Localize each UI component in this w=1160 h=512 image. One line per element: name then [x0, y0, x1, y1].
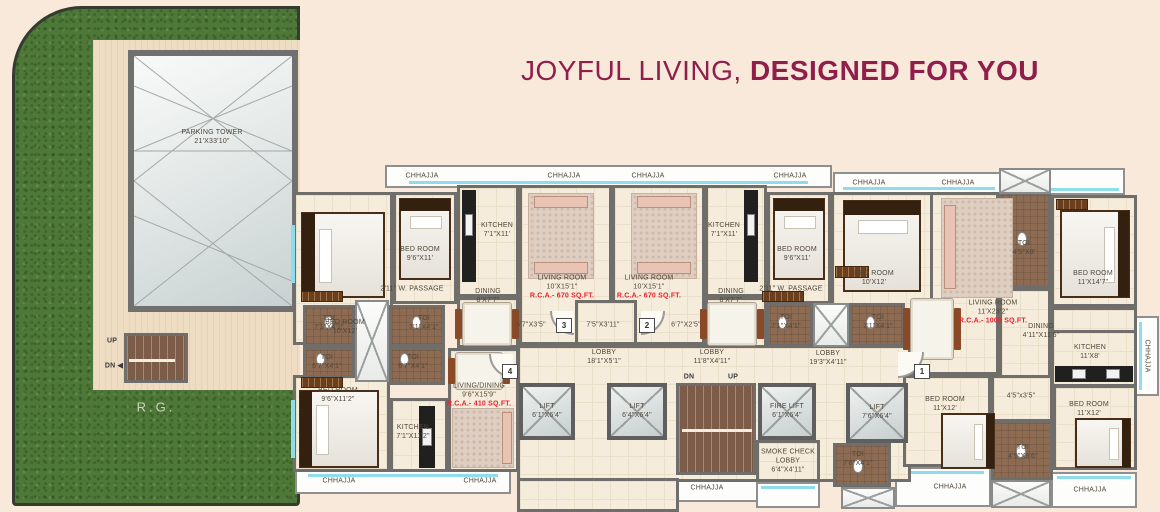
room-toilet	[389, 347, 445, 385]
wc-icon	[1017, 232, 1027, 246]
balcony-duct	[841, 487, 895, 509]
chhajja-band	[756, 482, 820, 508]
page-title: JOYFUL LIVING, DESIGNED FOR YOU	[460, 55, 1100, 87]
living-room-1-floor	[999, 288, 1051, 387]
room-toilet	[767, 303, 813, 347]
dining-table-icon	[462, 302, 512, 346]
hob-icon	[465, 214, 473, 236]
wardrobe-icon	[762, 291, 804, 302]
bed-icon	[773, 198, 825, 280]
sink-icon	[1106, 369, 1120, 379]
duct	[813, 303, 849, 347]
entrance-foyer	[575, 300, 637, 345]
stair-landing-line	[682, 429, 752, 432]
sofa-icon	[637, 262, 691, 274]
sofa-icon	[534, 262, 588, 274]
sofa-icon	[944, 205, 956, 289]
fire-lift-shaft	[758, 383, 816, 440]
core-staircase	[676, 383, 756, 475]
wardrobe-icon	[835, 266, 869, 278]
wc-icon	[866, 316, 875, 329]
kitchen-counter	[1055, 366, 1133, 382]
bed-icon	[843, 200, 921, 292]
balcony-duct	[991, 480, 1051, 508]
sofa-icon	[534, 196, 588, 208]
truss-lines-graphic	[134, 56, 292, 306]
kitchen-counter	[462, 190, 476, 282]
bed-icon	[941, 413, 995, 469]
sofa-icon	[502, 412, 512, 464]
bed-icon	[299, 390, 379, 468]
window-strip	[291, 225, 295, 283]
dining-table-icon	[707, 302, 757, 346]
chhajja-band	[833, 172, 1005, 194]
title-light: JOYFUL LIVING,	[521, 55, 742, 86]
sofa-icon	[637, 196, 691, 208]
wc-icon	[400, 353, 409, 365]
bed-icon	[1060, 210, 1130, 298]
wardrobe-icon	[1056, 199, 1088, 210]
wc-icon	[778, 316, 787, 329]
hob-icon	[1072, 369, 1086, 379]
wc-icon	[853, 459, 863, 473]
chhajja-band	[1039, 168, 1125, 195]
wardrobe-icon	[301, 377, 343, 388]
bed-icon	[1075, 418, 1131, 468]
chhajja-band-vertical	[1135, 316, 1159, 396]
wc-icon	[1016, 444, 1026, 458]
window-strip	[291, 400, 295, 458]
duct	[999, 168, 1051, 194]
passage-floor	[991, 375, 1053, 422]
wc-icon	[316, 353, 325, 365]
site-staircase	[124, 333, 188, 383]
hob-icon	[422, 428, 432, 446]
kitchen-counter	[744, 190, 758, 282]
chhajja-band	[295, 470, 511, 494]
wc-icon	[324, 316, 333, 329]
bed-icon	[399, 198, 451, 280]
room-toilet	[849, 303, 905, 347]
lobby-floor-extension	[517, 478, 679, 512]
wc-icon	[412, 316, 421, 329]
bed-icon	[301, 212, 385, 298]
hob-icon	[747, 214, 755, 236]
wardrobe-icon	[301, 291, 343, 302]
lift-shaft	[607, 383, 667, 440]
title-bold: DESIGNED FOR YOU	[750, 55, 1039, 86]
parking-tower	[128, 50, 298, 312]
dining-table-icon	[910, 298, 954, 360]
floor-plan-page: JOYFUL LIVING, DESIGNED FOR YOU	[0, 0, 1160, 512]
lift-shaft	[519, 383, 575, 440]
stair-landing-line	[129, 359, 175, 362]
lift-shaft	[846, 383, 908, 443]
duct	[355, 300, 389, 382]
chhajja-band	[1051, 472, 1137, 508]
smoke-check-lobby	[756, 440, 820, 482]
